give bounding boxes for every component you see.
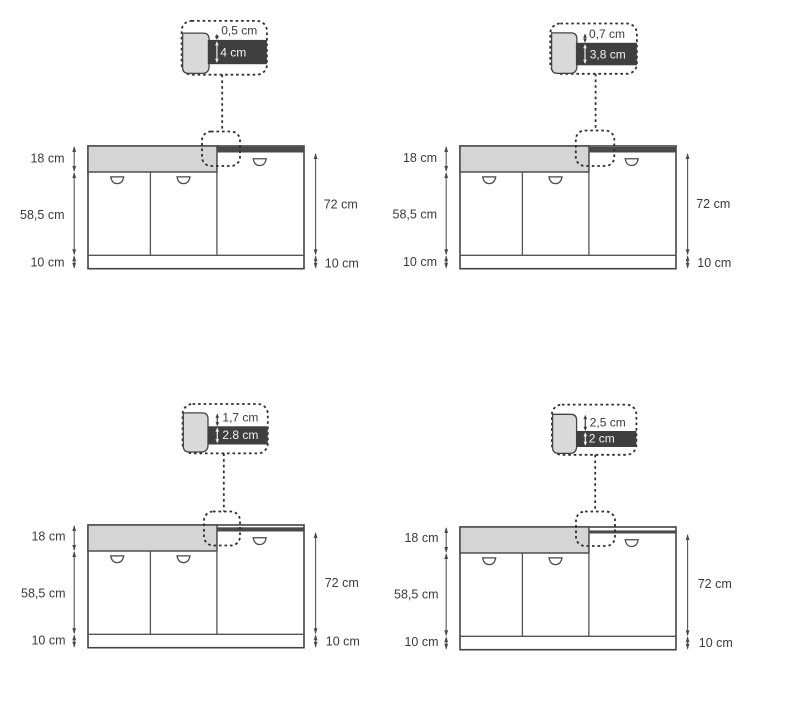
svg-text:1,7 cm: 1,7 cm bbox=[222, 411, 258, 425]
svg-text:0,7 cm: 0,7 cm bbox=[589, 27, 625, 41]
svg-text:18 cm: 18 cm bbox=[404, 531, 438, 545]
svg-text:10 cm: 10 cm bbox=[404, 635, 438, 649]
svg-text:58,5 cm: 58,5 cm bbox=[394, 588, 438, 602]
svg-text:18 cm: 18 cm bbox=[403, 151, 437, 165]
svg-text:72 cm: 72 cm bbox=[698, 577, 732, 591]
svg-text:2,5 cm: 2,5 cm bbox=[590, 416, 626, 430]
svg-text:10 cm: 10 cm bbox=[403, 255, 437, 269]
svg-text:10 cm: 10 cm bbox=[325, 256, 359, 270]
svg-text:58,5 cm: 58,5 cm bbox=[393, 208, 437, 222]
svg-text:58,5 cm: 58,5 cm bbox=[21, 586, 65, 600]
svg-text:10 cm: 10 cm bbox=[699, 636, 733, 650]
svg-text:58,5 cm: 58,5 cm bbox=[20, 208, 64, 222]
svg-text:10 cm: 10 cm bbox=[31, 634, 65, 648]
svg-text:10 cm: 10 cm bbox=[697, 256, 731, 270]
svg-text:3,8 cm: 3,8 cm bbox=[590, 47, 626, 61]
svg-text:72 cm: 72 cm bbox=[324, 198, 358, 212]
svg-text:18 cm: 18 cm bbox=[31, 530, 65, 544]
svg-text:10 cm: 10 cm bbox=[30, 256, 64, 270]
svg-text:72 cm: 72 cm bbox=[696, 197, 730, 211]
svg-text:2 cm: 2 cm bbox=[589, 432, 615, 446]
svg-text:18 cm: 18 cm bbox=[30, 152, 64, 166]
svg-text:10 cm: 10 cm bbox=[326, 635, 360, 649]
svg-text:72 cm: 72 cm bbox=[325, 576, 359, 590]
svg-text:4 cm: 4 cm bbox=[220, 46, 246, 60]
svg-text:2.8 cm: 2.8 cm bbox=[222, 428, 258, 442]
svg-text:0,5 cm: 0,5 cm bbox=[221, 23, 257, 37]
